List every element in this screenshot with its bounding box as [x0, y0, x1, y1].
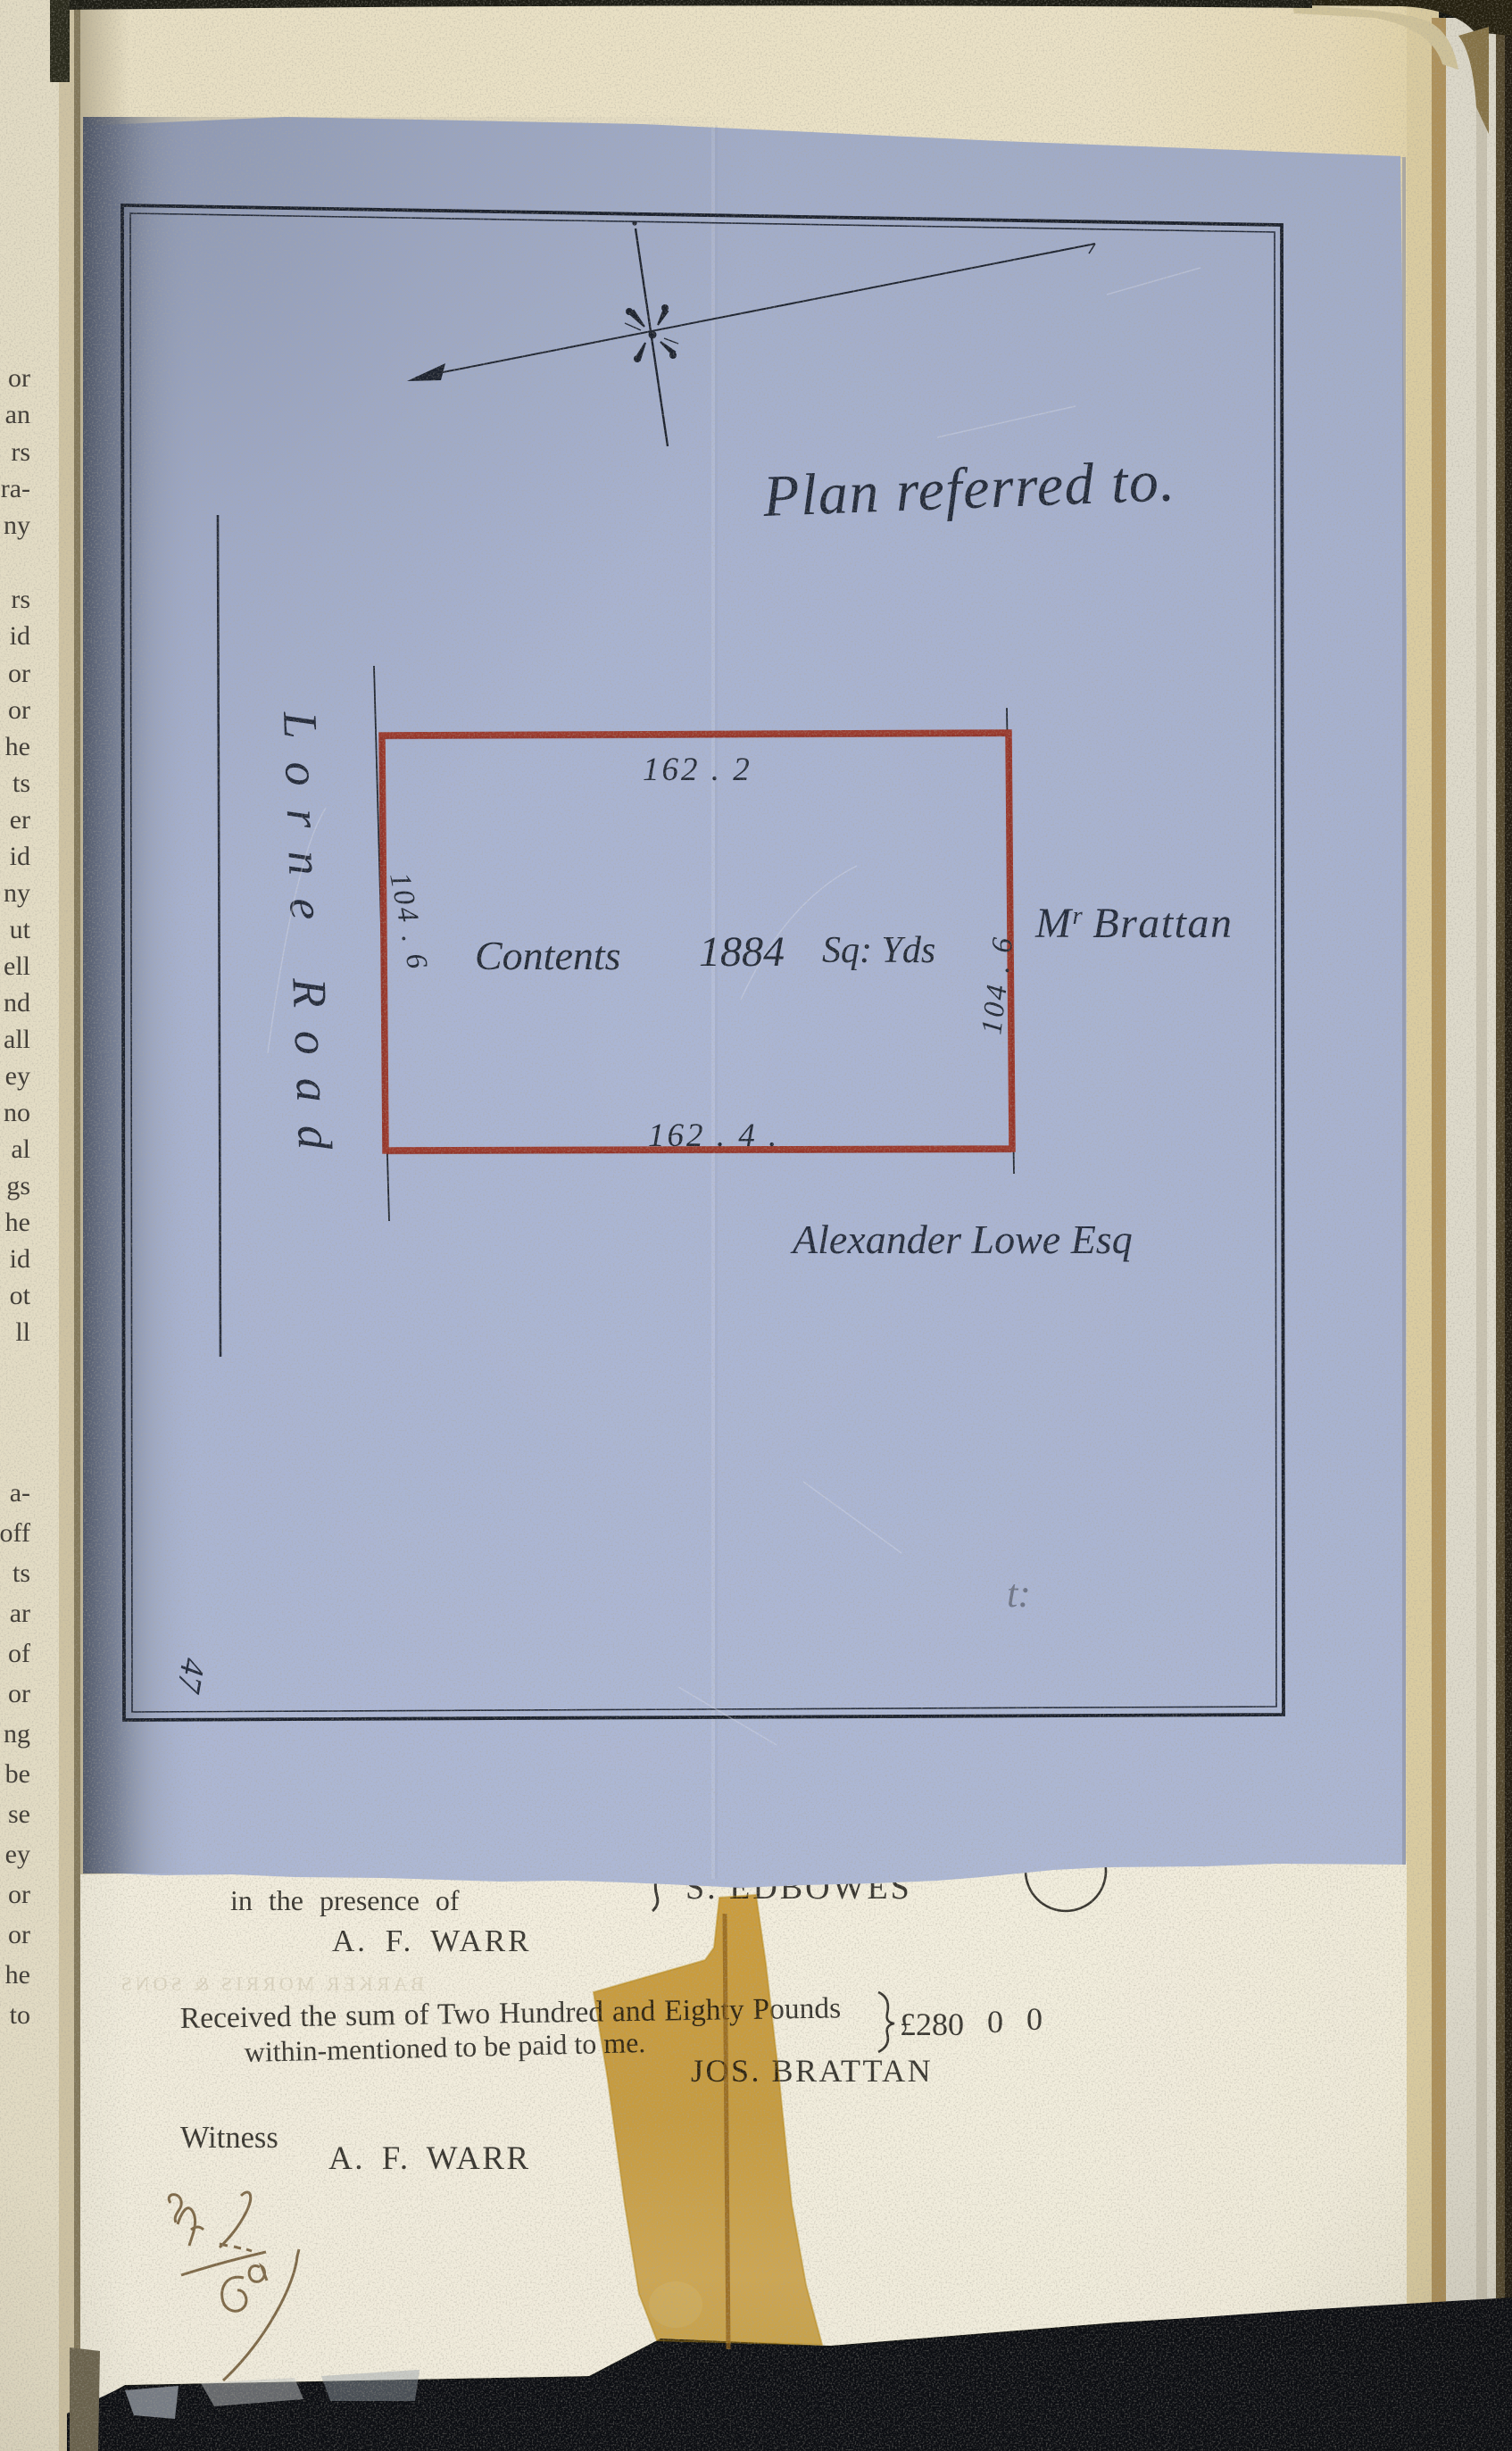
svg-text:of: of [8, 1639, 30, 1668]
svg-text:or: or [8, 1880, 30, 1909]
svg-text:off: off [0, 1518, 30, 1548]
svg-text:to: to [10, 2000, 30, 2030]
svg-text:all: all [4, 1025, 30, 1054]
svg-text:or: or [8, 695, 30, 725]
svg-text:he: he [5, 732, 30, 761]
svg-text:al: al [11, 1134, 30, 1164]
svg-text:ts: ts [12, 1558, 30, 1588]
svg-text:ell: ell [4, 951, 30, 981]
svg-text:rs: rs [11, 585, 30, 614]
svg-text:or: or [8, 363, 30, 393]
svg-text:no: no [4, 1098, 30, 1127]
svg-text:ot: ot [10, 1281, 31, 1310]
svg-text:ra-: ra- [1, 474, 30, 503]
svg-text:he: he [5, 1208, 30, 1237]
svg-text:id: id [10, 842, 30, 871]
svg-text:an: an [5, 400, 30, 429]
svg-text:gs: gs [6, 1171, 30, 1201]
svg-text:or: or [8, 1679, 30, 1708]
svg-text:er: er [10, 805, 30, 835]
svg-text:nd: nd [4, 988, 30, 1018]
svg-text:ny: ny [4, 511, 30, 540]
svg-text:rs: rs [11, 437, 30, 467]
svg-text:id: id [10, 1244, 30, 1274]
svg-text:he: he [5, 1960, 30, 1990]
svg-text:ll: ll [15, 1317, 30, 1347]
svg-text:ny: ny [4, 878, 30, 908]
svg-text:ar: ar [10, 1599, 30, 1628]
svg-text:id: id [10, 621, 30, 651]
svg-text:a-: a- [10, 1478, 30, 1508]
svg-text:ng: ng [4, 1719, 30, 1749]
svg-text:ey: ey [5, 1840, 30, 1869]
svg-text:se: se [8, 1799, 30, 1829]
svg-text:ts: ts [12, 769, 30, 798]
svg-text:ey: ey [5, 1061, 30, 1091]
svg-text:or: or [8, 659, 30, 688]
svg-text:ut: ut [10, 915, 31, 944]
svg-text:be: be [5, 1759, 30, 1789]
svg-text:or: or [8, 1920, 30, 1949]
